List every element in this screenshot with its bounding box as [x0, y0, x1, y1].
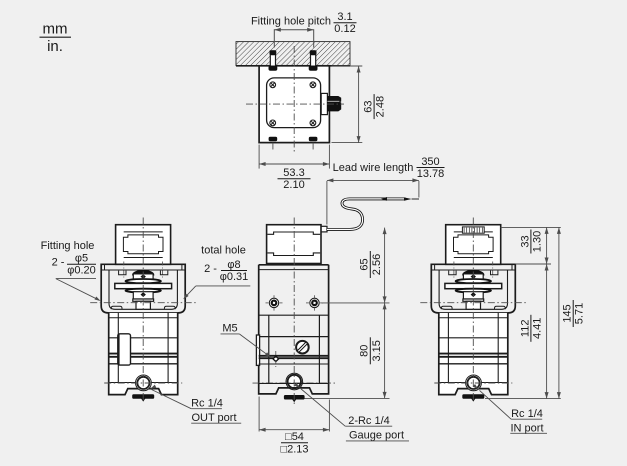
svg-text:112: 112: [519, 320, 531, 338]
svg-text:□2.13: □2.13: [280, 443, 308, 455]
svg-text:3.15: 3.15: [371, 340, 383, 361]
svg-text:2.56: 2.56: [371, 254, 383, 275]
svg-text:4.41: 4.41: [531, 318, 543, 339]
svg-text:Fitting hole: Fitting hole: [41, 240, 95, 252]
svg-text:total hole: total hole: [201, 245, 246, 257]
svg-text:3.1: 3.1: [337, 11, 352, 23]
svg-text:IN port: IN port: [510, 423, 543, 435]
svg-text:mm: mm: [43, 21, 68, 38]
svg-text:φ8: φ8: [227, 259, 240, 271]
svg-text:63: 63: [363, 100, 375, 112]
svg-text:M5: M5: [222, 323, 237, 335]
svg-text:2.48: 2.48: [375, 96, 387, 117]
svg-text:80: 80: [359, 345, 371, 357]
svg-text:φ5: φ5: [75, 253, 88, 265]
svg-text:145: 145: [562, 304, 574, 322]
svg-text:Rc 1/4: Rc 1/4: [511, 408, 543, 420]
svg-text:Lead wire length: Lead wire length: [333, 162, 414, 174]
svg-text:Fitting hole pitch: Fitting hole pitch: [251, 16, 331, 28]
svg-text:OUT port: OUT port: [191, 412, 236, 424]
svg-text:in.: in.: [47, 38, 63, 55]
svg-text:φ0.31: φ0.31: [220, 271, 249, 283]
svg-text:33: 33: [519, 235, 531, 247]
svg-text:Gauge port: Gauge port: [349, 430, 404, 442]
svg-text:2 -: 2 -: [204, 263, 217, 275]
svg-text:53.3: 53.3: [283, 167, 304, 179]
svg-text:5.71: 5.71: [574, 303, 586, 324]
svg-text:φ0.20: φ0.20: [67, 265, 96, 277]
svg-text:2-Rc 1/4: 2-Rc 1/4: [348, 415, 390, 427]
svg-text:0.12: 0.12: [334, 23, 355, 35]
svg-text:13.78: 13.78: [417, 168, 445, 180]
svg-text:2.10: 2.10: [283, 179, 304, 191]
svg-text:1.30: 1.30: [531, 231, 543, 252]
svg-text:65: 65: [359, 258, 371, 270]
svg-text:2 -: 2 -: [52, 256, 65, 268]
svg-text:Rc 1/4: Rc 1/4: [191, 398, 223, 410]
svg-text:350: 350: [421, 156, 439, 168]
svg-text:□54: □54: [285, 431, 304, 443]
